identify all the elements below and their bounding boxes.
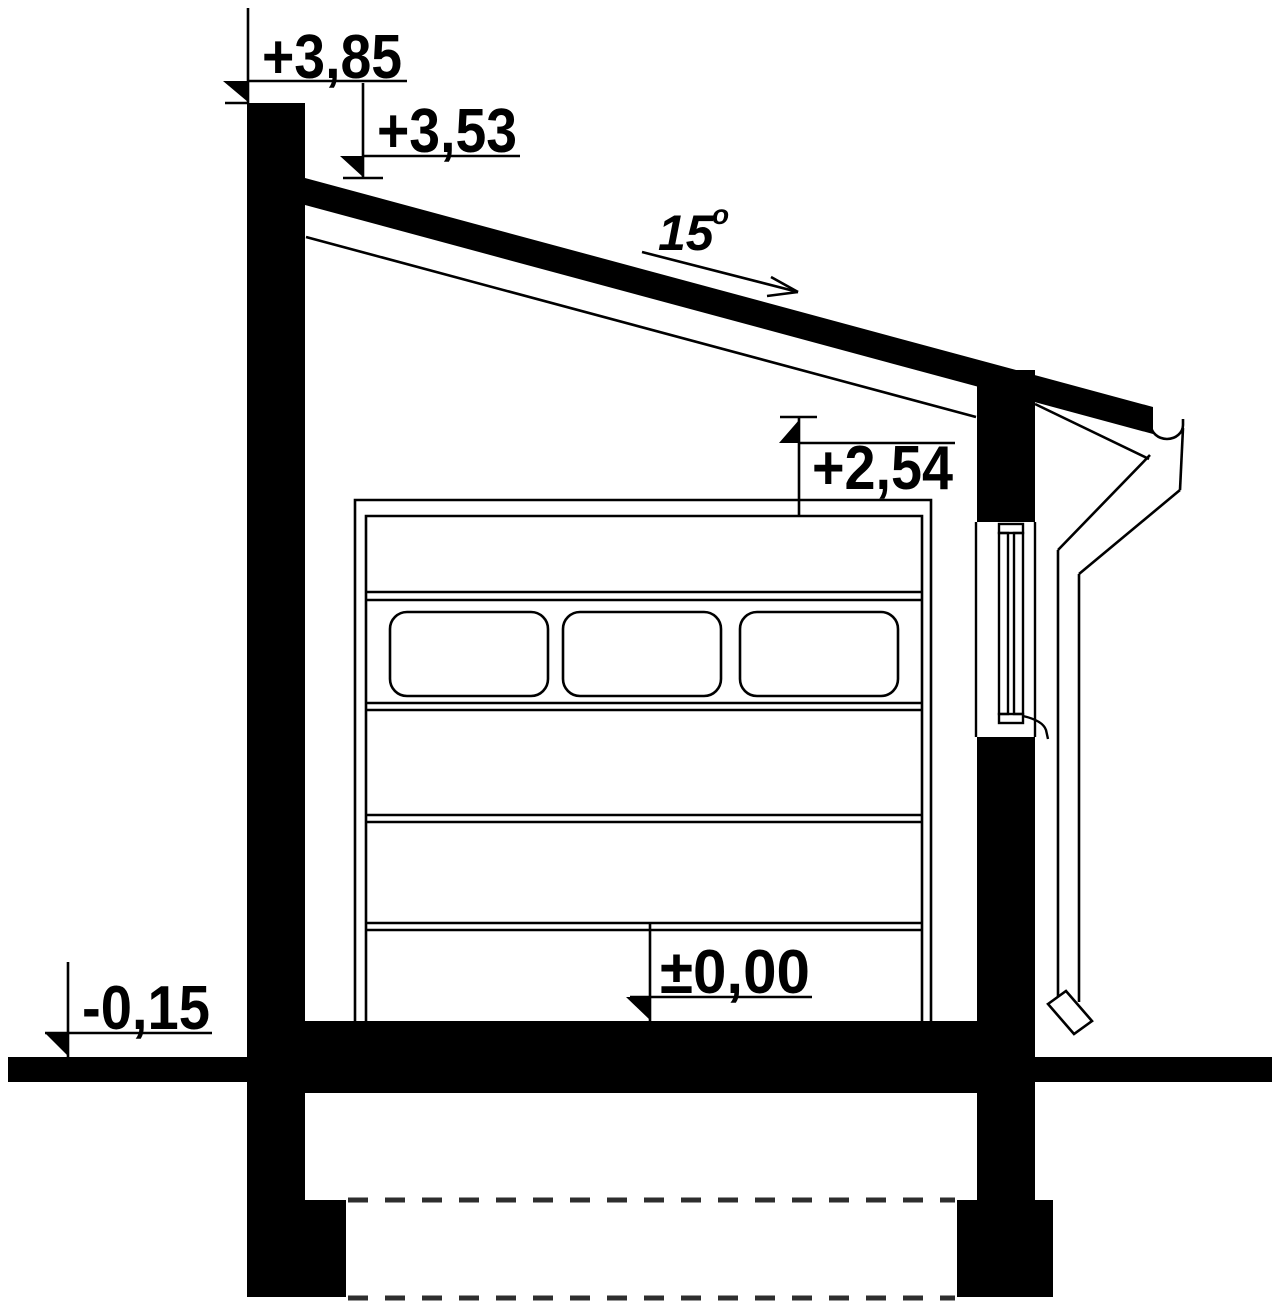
level-marker-floor: ±0,00 — [626, 923, 812, 1021]
gutter-downspout — [1048, 419, 1183, 1034]
structure — [8, 103, 1272, 1297]
ceiling-line — [306, 237, 976, 417]
right-footing — [957, 1200, 1053, 1297]
level-markers: +3,85 +3,53 +2,54 ±0,00 -0,15 — [45, 8, 955, 1057]
window-frame-outer — [999, 533, 1008, 714]
level-label: -0,15 — [82, 974, 210, 1043]
foundation-dashed-lines — [348, 1200, 955, 1298]
level-label: +2,54 — [812, 434, 953, 503]
left-wall — [247, 103, 305, 1200]
door-outer-frame — [355, 500, 931, 1021]
door-panel-joints — [366, 592, 922, 930]
right-wall-lower — [977, 737, 1035, 1200]
level-label: +3,53 — [377, 97, 517, 166]
door-window — [390, 612, 548, 696]
gutter — [1151, 419, 1183, 439]
slope-arrow-barb — [767, 292, 798, 296]
ground-bar-left — [8, 1057, 247, 1082]
door-window — [563, 612, 721, 696]
level-arrow — [45, 1033, 68, 1056]
slope-degree-symbol: o — [712, 199, 729, 230]
level-arrow — [223, 81, 248, 102]
door-window — [740, 612, 898, 696]
downspout-elbow — [1048, 991, 1092, 1034]
door-windows — [390, 612, 898, 696]
left-footing — [247, 1200, 346, 1297]
downspout-upper-outer — [1079, 490, 1180, 574]
slope-value: 15 — [658, 205, 715, 261]
drawing-sheet: +3,85 +3,53 +2,54 ±0,00 -0,15 — [0, 0, 1280, 1304]
level-marker-eaves: +3,53 — [340, 83, 520, 178]
level-arrow — [779, 420, 799, 443]
window-section — [976, 522, 1048, 739]
gutter-outer-edge — [1180, 428, 1183, 490]
ground-bar-right — [1035, 1057, 1272, 1082]
downspout-upper-inner — [1058, 455, 1150, 550]
level-label: ±0,00 — [660, 938, 810, 1007]
right-wall-upper — [977, 370, 1035, 522]
window-sill — [999, 714, 1023, 723]
level-arrow — [340, 156, 363, 177]
level-label: +3,85 — [262, 23, 402, 92]
section-drawing: +3,85 +3,53 +2,54 ±0,00 -0,15 — [0, 0, 1280, 1304]
level-marker-ground: -0,15 — [45, 962, 212, 1057]
level-marker-parapet: +3,85 — [223, 8, 407, 103]
window-frame-inner — [1014, 533, 1023, 714]
level-arrow — [626, 997, 650, 1020]
floor-slab — [305, 1021, 977, 1093]
garage-door — [355, 500, 931, 1021]
window-head — [999, 524, 1023, 533]
